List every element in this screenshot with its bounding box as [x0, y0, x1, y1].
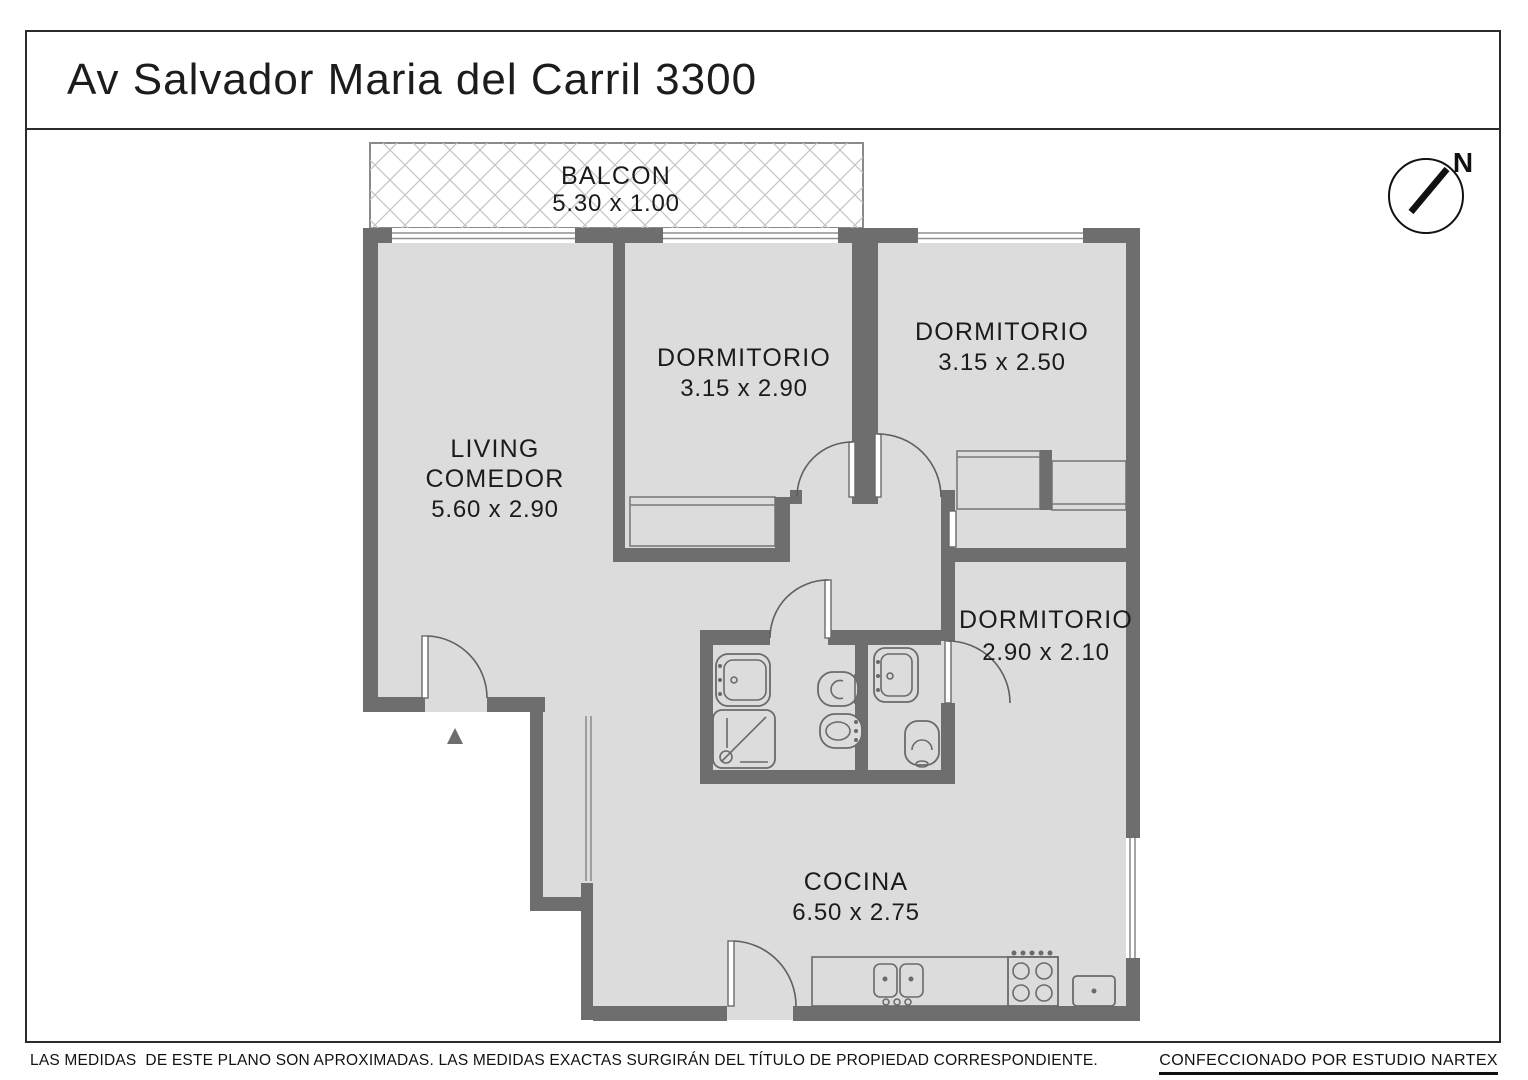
living-label-2: COMEDOR: [426, 465, 565, 493]
window-living: [392, 228, 575, 243]
dorm1-label: DORMITORIO: [657, 344, 831, 372]
stove-knob: [1021, 951, 1026, 956]
living-dims: 5.60 x 2.90: [431, 496, 559, 523]
window-kitchen: [1126, 838, 1140, 958]
dorm2-door-leaf: [875, 434, 881, 497]
fridge-dot: [1092, 989, 1097, 994]
faucet-dot: [876, 660, 880, 664]
stove-knob: [1012, 951, 1017, 956]
stove-knob: [1039, 951, 1044, 956]
compass-icon: N: [1389, 147, 1473, 233]
cocina-label: COCINA: [804, 868, 908, 896]
faucet-dot: [718, 678, 722, 682]
kitchen-door-leaf: [728, 941, 734, 1006]
dorm1-door-leaf: [849, 442, 855, 497]
dorm3-dims: 2.90 x 2.10: [982, 639, 1110, 666]
bidet-dot: [854, 720, 858, 724]
balcony-label: BALCON: [561, 162, 671, 190]
cocina-dims: 6.50 x 2.75: [792, 899, 920, 926]
bidet-dot: [854, 738, 858, 742]
dorm3-label: DORMITORIO: [959, 606, 1133, 634]
window-dorm2: [918, 228, 1083, 243]
entry-door-leaf: [422, 636, 428, 698]
compass-north-label: N: [1453, 147, 1473, 178]
window-dorm1: [663, 228, 838, 243]
dorm2-dims: 3.15 x 2.50: [938, 349, 1066, 376]
sink-drain-dot: [883, 977, 888, 982]
balcony-dims: 5.30 x 1.00: [552, 190, 680, 217]
faucet-dot: [718, 692, 722, 696]
toilet-icon: [818, 672, 858, 706]
closet-sliding-leaf: [949, 511, 956, 547]
footer-credit: CONFECCIONADO POR ESTUDIO NARTEX: [1159, 1052, 1498, 1075]
balcony: BALCON 5.30 x 1.00: [370, 143, 863, 228]
sink-drain-dot: [909, 977, 914, 982]
faucet-dot: [876, 688, 880, 692]
bathroom1-door-leaf: [825, 580, 831, 638]
faucet-dot: [718, 664, 722, 668]
stove-knob: [1030, 951, 1035, 956]
footer-disclaimer: LAS MEDIDAS DE ESTE PLANO SON APROXIMADA…: [30, 1052, 1098, 1070]
dorm3-door-leaf: [945, 641, 951, 703]
footer: LAS MEDIDAS DE ESTE PLANO SON APROXIMADA…: [30, 1052, 1498, 1075]
toilet-icon: [905, 721, 939, 765]
dorm2-label: DORMITORIO: [915, 318, 1089, 346]
dorm1-dims: 3.15 x 2.90: [680, 375, 808, 402]
living-label-1: LIVING: [450, 435, 539, 463]
stove-knob: [1048, 951, 1053, 956]
bidet-dot: [854, 729, 858, 733]
faucet-dot: [876, 674, 880, 678]
entrance-arrow-icon: [447, 728, 463, 744]
floorplan-svg: BALCON 5.30 x 1.00: [0, 0, 1528, 1080]
